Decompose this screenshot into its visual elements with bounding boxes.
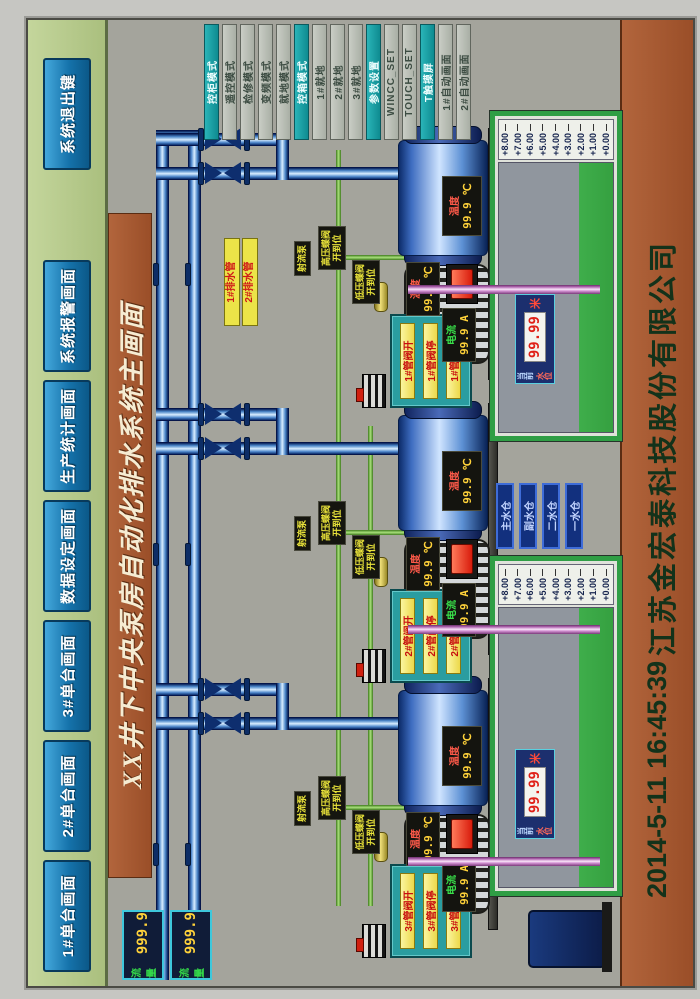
sump-water-area xyxy=(498,607,614,888)
flow-label: 流量 xyxy=(176,958,206,978)
water-sump-right: +8.00+7.00 +6.00+5.00 +4.00+3.00 +2.00+1… xyxy=(490,111,622,441)
footer-bar: 2014-5-11 16:45:39 江苏金宏泰科技股份有限公司 xyxy=(620,20,693,986)
mode-button-maintenance[interactable]: 检修模式 xyxy=(240,24,255,140)
lv-valve-label: 低压蝶阀开到位 xyxy=(352,810,380,854)
suction-pipe-1 xyxy=(408,285,600,294)
run-indicator-lamp xyxy=(446,264,478,304)
valve-open-button[interactable]: 3#管阀开 xyxy=(400,873,415,949)
water-level-value: 99.99 xyxy=(524,312,546,362)
sump-level-scale: +8.00+7.00 +6.00+5.00 +4.00+3.00 +2.00+1… xyxy=(498,564,614,605)
mode-button-auto-screen-1[interactable]: 1#自动画面 xyxy=(438,24,453,140)
mode-button-param-setting[interactable]: 参数设置 xyxy=(366,24,381,140)
flow-value: 999.9 xyxy=(183,912,199,954)
menu-bar: 1#单台画面 2#单台画面 3#单台画面 数据设定画面 生产统计画面 系统报警画… xyxy=(28,20,108,986)
lv-valve-label: 低压蝶阀开到位 xyxy=(352,535,380,579)
page-title: XX井下中央泵房自动化排水系统主画面 xyxy=(112,302,149,789)
hv-valve-label: 高压蝶阀开到位 xyxy=(318,501,346,545)
valve-stop-button[interactable]: 2#管阀停 xyxy=(423,598,438,674)
mode-button-2-local[interactable]: 2#就地 xyxy=(330,24,345,140)
lv-valve-label: 低压蝶阀开到位 xyxy=(352,260,380,304)
mode-button-control-box[interactable]: 控箱模式 xyxy=(294,24,309,140)
pump-unit-1: 射流泵 高压蝶阀开到位 低压蝶阀开到位 1#管阀开 1#管阀停 1#管阀关 温度… xyxy=(146,116,494,416)
pump-temp-display: 温度99.9 ℃ xyxy=(442,726,482,786)
sump-button-main[interactable]: 主水仓 xyxy=(496,483,514,549)
riser-valve xyxy=(205,162,241,184)
hv-valve-label: 高压蝶阀开到位 xyxy=(318,776,346,820)
vacuum-pump-icon xyxy=(362,649,386,683)
jet-pump-label: 射流泵 xyxy=(294,516,311,551)
run-indicator-lamp xyxy=(446,539,478,579)
mode-button-auto-screen-2[interactable]: 2#自动画面 xyxy=(456,24,471,140)
flow-value: 999.9 xyxy=(135,912,151,954)
pipe-label-1: 1#排水管 xyxy=(224,238,240,326)
menu-button-system-exit[interactable]: 系统退出键 xyxy=(43,58,91,170)
jet-pump-label: 射流泵 xyxy=(294,791,311,826)
sump-level-scale: +8.00+7.00 +6.00+5.00 +4.00+3.00 +2.00+1… xyxy=(498,119,614,160)
equipment-box xyxy=(528,910,606,968)
mode-button-stack: 控柜模式 遥控模式 检修模式 变频模式 就地模式 控箱模式 1#就地 2#就地 … xyxy=(204,24,471,140)
valve-stop-button[interactable]: 3#管阀停 xyxy=(423,873,438,949)
mode-button-wincc-set[interactable]: WINCC_SET xyxy=(384,24,399,140)
water-level-display: 当前 水位 99.99 米 xyxy=(515,294,555,384)
hv-valve-label: 高压蝶阀开到位 xyxy=(318,226,346,270)
mode-button-3-local[interactable]: 3#就地 xyxy=(348,24,363,140)
water-level-display: 当前 水位 99.99 米 xyxy=(515,749,555,839)
rotated-scada-screen: 1#单台画面 2#单台画面 3#单台画面 数据设定画面 生产统计画面 系统报警画… xyxy=(0,0,700,999)
flow-meter-2: 流量 999.9 xyxy=(170,910,212,980)
motor-temp-display: 温度99.9 ℃ xyxy=(406,537,440,591)
suction-pipe-2 xyxy=(408,625,600,634)
mode-button-control-cabinet[interactable]: 控柜模式 xyxy=(204,24,219,140)
pump-temp-display: 温度99.9 ℃ xyxy=(442,176,482,236)
mode-button-local[interactable]: 就地模式 xyxy=(276,24,291,140)
mode-button-vfd[interactable]: 变频模式 xyxy=(258,24,273,140)
valve-open-button[interactable]: 2#管阀开 xyxy=(400,598,415,674)
vacuum-pump-icon xyxy=(362,924,386,958)
sump-button-2[interactable]: 二水仓 xyxy=(542,483,560,549)
pump-temp-display: 温度99.9 ℃ xyxy=(442,451,482,511)
menu-button-unit2-screen[interactable]: 2#单台画面 xyxy=(43,740,91,852)
flow-meter-1: 流量 999.9 xyxy=(122,910,164,980)
run-indicator-lamp xyxy=(446,814,478,854)
menu-button-data-setting[interactable]: 数据设定画面 xyxy=(43,500,91,612)
menu-button-unit1-screen[interactable]: 1#单台画面 xyxy=(43,860,91,972)
sump-button-1[interactable]: 一水仓 xyxy=(565,483,583,549)
mode-button-1-local[interactable]: 1#就地 xyxy=(312,24,327,140)
suction-pipe-3 xyxy=(408,857,600,866)
sump-selector-buttons: 主水仓 副水仓 二水仓 一水仓 xyxy=(496,483,583,549)
flow-label: 流量 xyxy=(128,958,158,978)
company-name: 江苏金宏泰科技股份有限公司 xyxy=(640,240,682,656)
mode-button-touch-set[interactable]: TOUCH_SET xyxy=(402,24,417,140)
pipe-label-2: 2#排水管 xyxy=(242,238,258,326)
riser-valve xyxy=(205,712,241,734)
valve-stop-button[interactable]: 1#管阀停 xyxy=(423,323,438,399)
valve-open-button[interactable]: 1#管阀开 xyxy=(400,323,415,399)
mode-button-remote[interactable]: 遥控模式 xyxy=(222,24,237,140)
datetime: 2014-5-11 16:45:39 xyxy=(642,661,673,898)
motor-current-display: 电流99.9 A xyxy=(442,308,476,362)
menu-button-unit3-screen[interactable]: 3#单台画面 xyxy=(43,620,91,732)
jet-pump-label: 射流泵 xyxy=(294,241,311,276)
water-level-value: 99.99 xyxy=(524,767,546,817)
hmi-screen: 1#单台画面 2#单台画面 3#单台画面 数据设定画面 生产统计画面 系统报警画… xyxy=(26,18,695,988)
motor-current-display: 电流99.9 A xyxy=(442,858,476,912)
sump-button-aux[interactable]: 副水仓 xyxy=(519,483,537,549)
riser-valve xyxy=(205,437,241,459)
vacuum-pump-icon xyxy=(362,374,386,408)
menu-button-alarm-screen[interactable]: 系统报警画面 xyxy=(43,260,91,372)
mode-button-touch-screen[interactable]: T触摸屏 xyxy=(420,24,435,140)
pump-unit-2: 射流泵 高压蝶阀开到位 低压蝶阀开到位 2#管阀开 2#管阀停 2#管阀关 温度… xyxy=(146,391,494,691)
menu-button-production-stats[interactable]: 生产统计画面 xyxy=(43,380,91,492)
water-sump-left: +8.00+7.00 +6.00+5.00 +4.00+3.00 +2.00+1… xyxy=(490,556,622,896)
